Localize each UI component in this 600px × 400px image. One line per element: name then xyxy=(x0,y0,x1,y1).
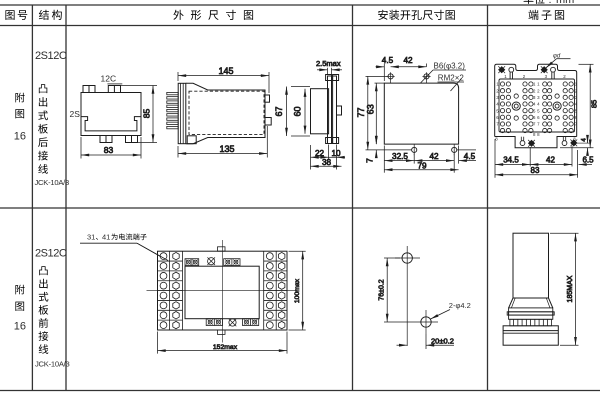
svg-text:2S12C: 2S12C xyxy=(35,248,67,260)
svg-text:4.5: 4.5 xyxy=(464,152,476,161)
svg-text:145: 145 xyxy=(218,66,233,76)
svg-text:22: 22 xyxy=(315,149,325,158)
svg-text:38: 38 xyxy=(322,158,332,167)
svg-text:83: 83 xyxy=(531,166,540,175)
svg-text:7: 7 xyxy=(365,158,375,163)
svg-text:41: 41 xyxy=(102,233,110,242)
svg-text:85: 85 xyxy=(142,109,152,119)
svg-text:2.5max: 2.5max xyxy=(316,59,341,68)
svg-text:63: 63 xyxy=(366,104,376,114)
svg-text:16: 16 xyxy=(14,321,26,333)
svg-text:2-φ4.2: 2-φ4.2 xyxy=(449,301,471,310)
svg-text:10: 10 xyxy=(332,149,342,158)
svg-text:12C: 12C xyxy=(101,74,117,84)
svg-text:JCK-10A/3: JCK-10A/3 xyxy=(35,178,69,187)
svg-text:2S: 2S xyxy=(70,109,81,119)
svg-text:RM2×2: RM2×2 xyxy=(438,74,465,83)
svg-text:85: 85 xyxy=(590,100,599,108)
svg-text:4.5: 4.5 xyxy=(382,56,394,65)
svg-text:60: 60 xyxy=(293,106,303,116)
svg-text:83: 83 xyxy=(104,145,114,155)
svg-text:100max: 100max xyxy=(294,278,301,303)
svg-text:B6(φ3.2): B6(φ3.2) xyxy=(434,62,466,71)
svg-text:152max: 152max xyxy=(213,344,238,351)
svg-text:77: 77 xyxy=(356,107,366,117)
svg-text:20±0.2: 20±0.2 xyxy=(431,337,454,346)
svg-text:JCK-10A/3: JCK-10A/3 xyxy=(35,360,69,369)
svg-text:2S12C: 2S12C xyxy=(35,50,67,62)
svg-text:76±0.2: 76±0.2 xyxy=(379,279,386,300)
svg-text:32.5: 32.5 xyxy=(392,152,408,161)
svg-text:42: 42 xyxy=(403,56,413,65)
svg-text:6.5: 6.5 xyxy=(582,156,594,165)
svg-text:42: 42 xyxy=(429,152,439,161)
svg-text:135: 135 xyxy=(219,144,234,154)
svg-text:34.5: 34.5 xyxy=(503,156,519,165)
svg-text:42: 42 xyxy=(546,156,555,165)
svg-text:31: 31 xyxy=(87,233,95,242)
svg-text:79: 79 xyxy=(417,161,427,170)
svg-text:67: 67 xyxy=(274,106,284,116)
svg-text:185MAX: 185MAX xyxy=(567,275,574,302)
svg-text:16: 16 xyxy=(14,131,26,143)
